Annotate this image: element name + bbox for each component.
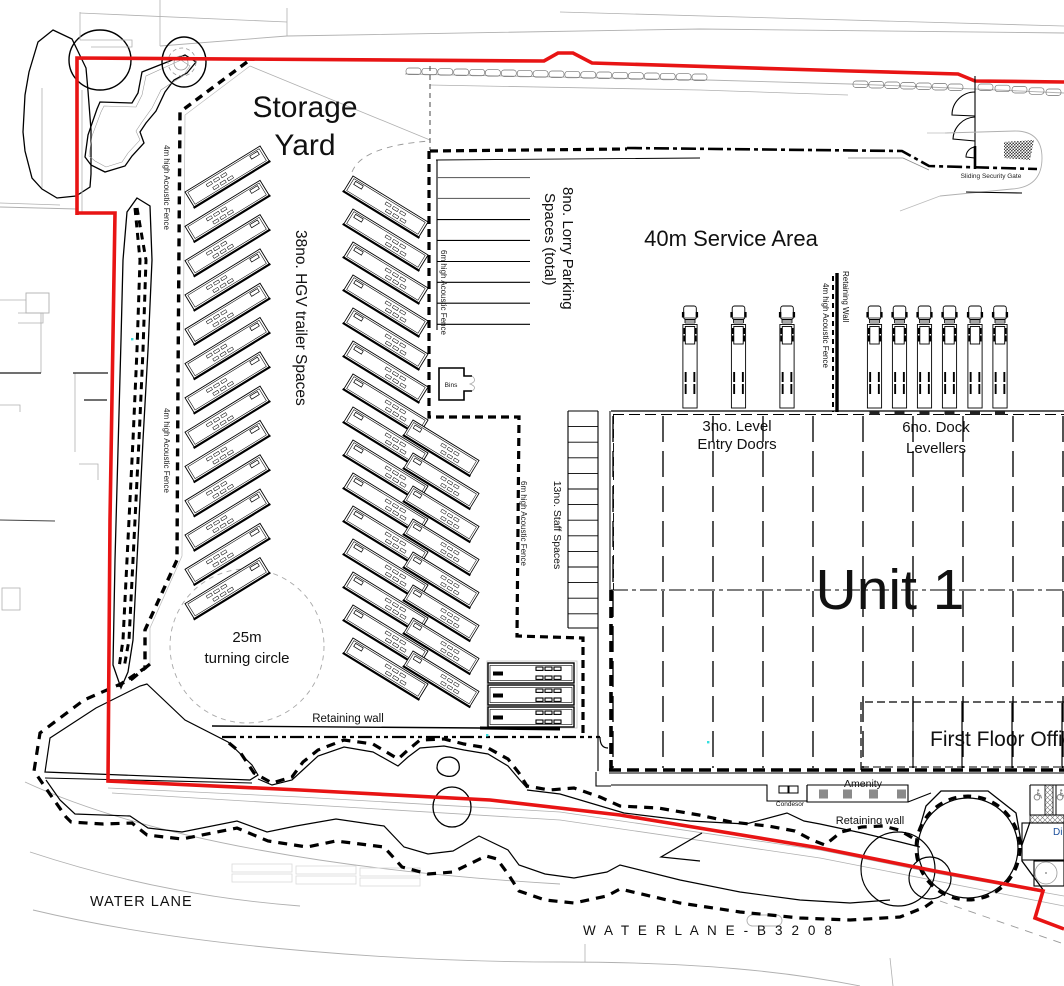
svg-text:Entry Doors: Entry Doors [697,436,776,453]
svg-text:Amenity: Amenity [844,778,883,790]
svg-text:turning circle: turning circle [204,650,289,667]
svg-text:Bins: Bins [445,382,458,389]
svg-text:W A T E R L A N E - B 3 2 0: W A T E R L A N E - B 3 2 0 8 [583,923,835,938]
svg-text:Yard: Yard [274,129,335,162]
svg-text:Levellers: Levellers [906,440,966,457]
svg-text:Retaining wall: Retaining wall [836,815,904,827]
svg-text:Storage: Storage [252,91,357,124]
svg-text:25m: 25m [232,629,261,646]
svg-text:Di: Di [1053,827,1062,838]
svg-text:WATER LANE: WATER LANE [90,894,193,910]
svg-text:Condesor: Condesor [776,801,805,808]
svg-text:13no. Staff Spaces: 13no. Staff Spaces [551,481,563,570]
svg-text:8no. Lorry Parking: 8no. Lorry Parking [559,187,576,310]
svg-text:6no. Dock: 6no. Dock [902,419,970,436]
svg-text:Retaining wall: Retaining wall [312,713,384,725]
svg-text:4m high Acoustic Fence: 4m high Acoustic Fence [821,283,830,368]
svg-text:40m Service Area: 40m Service Area [644,226,818,251]
svg-text:Spaces (total): Spaces (total) [541,193,558,286]
svg-text:6m high Acoustic Fence: 6m high Acoustic Fence [519,481,528,566]
svg-text:4m high Acoustic Fence: 4m high Acoustic Fence [162,408,171,493]
svg-text:6m high Acoustic Fence: 6m high Acoustic Fence [439,250,448,335]
svg-text:4m high Acoustic Fence: 4m high Acoustic Fence [162,145,171,230]
svg-text:3no. Level: 3no. Level [702,418,771,435]
svg-text:Retaining Wall: Retaining Wall [841,271,850,323]
svg-text:38no. HGV trailer Spaces: 38no. HGV trailer Spaces [292,230,309,406]
svg-text:Unit 1: Unit 1 [816,558,965,622]
svg-text:First Floor Offices: First Floor Offices [930,728,1064,751]
svg-text:Sliding Security Gate: Sliding Security Gate [961,173,1022,180]
